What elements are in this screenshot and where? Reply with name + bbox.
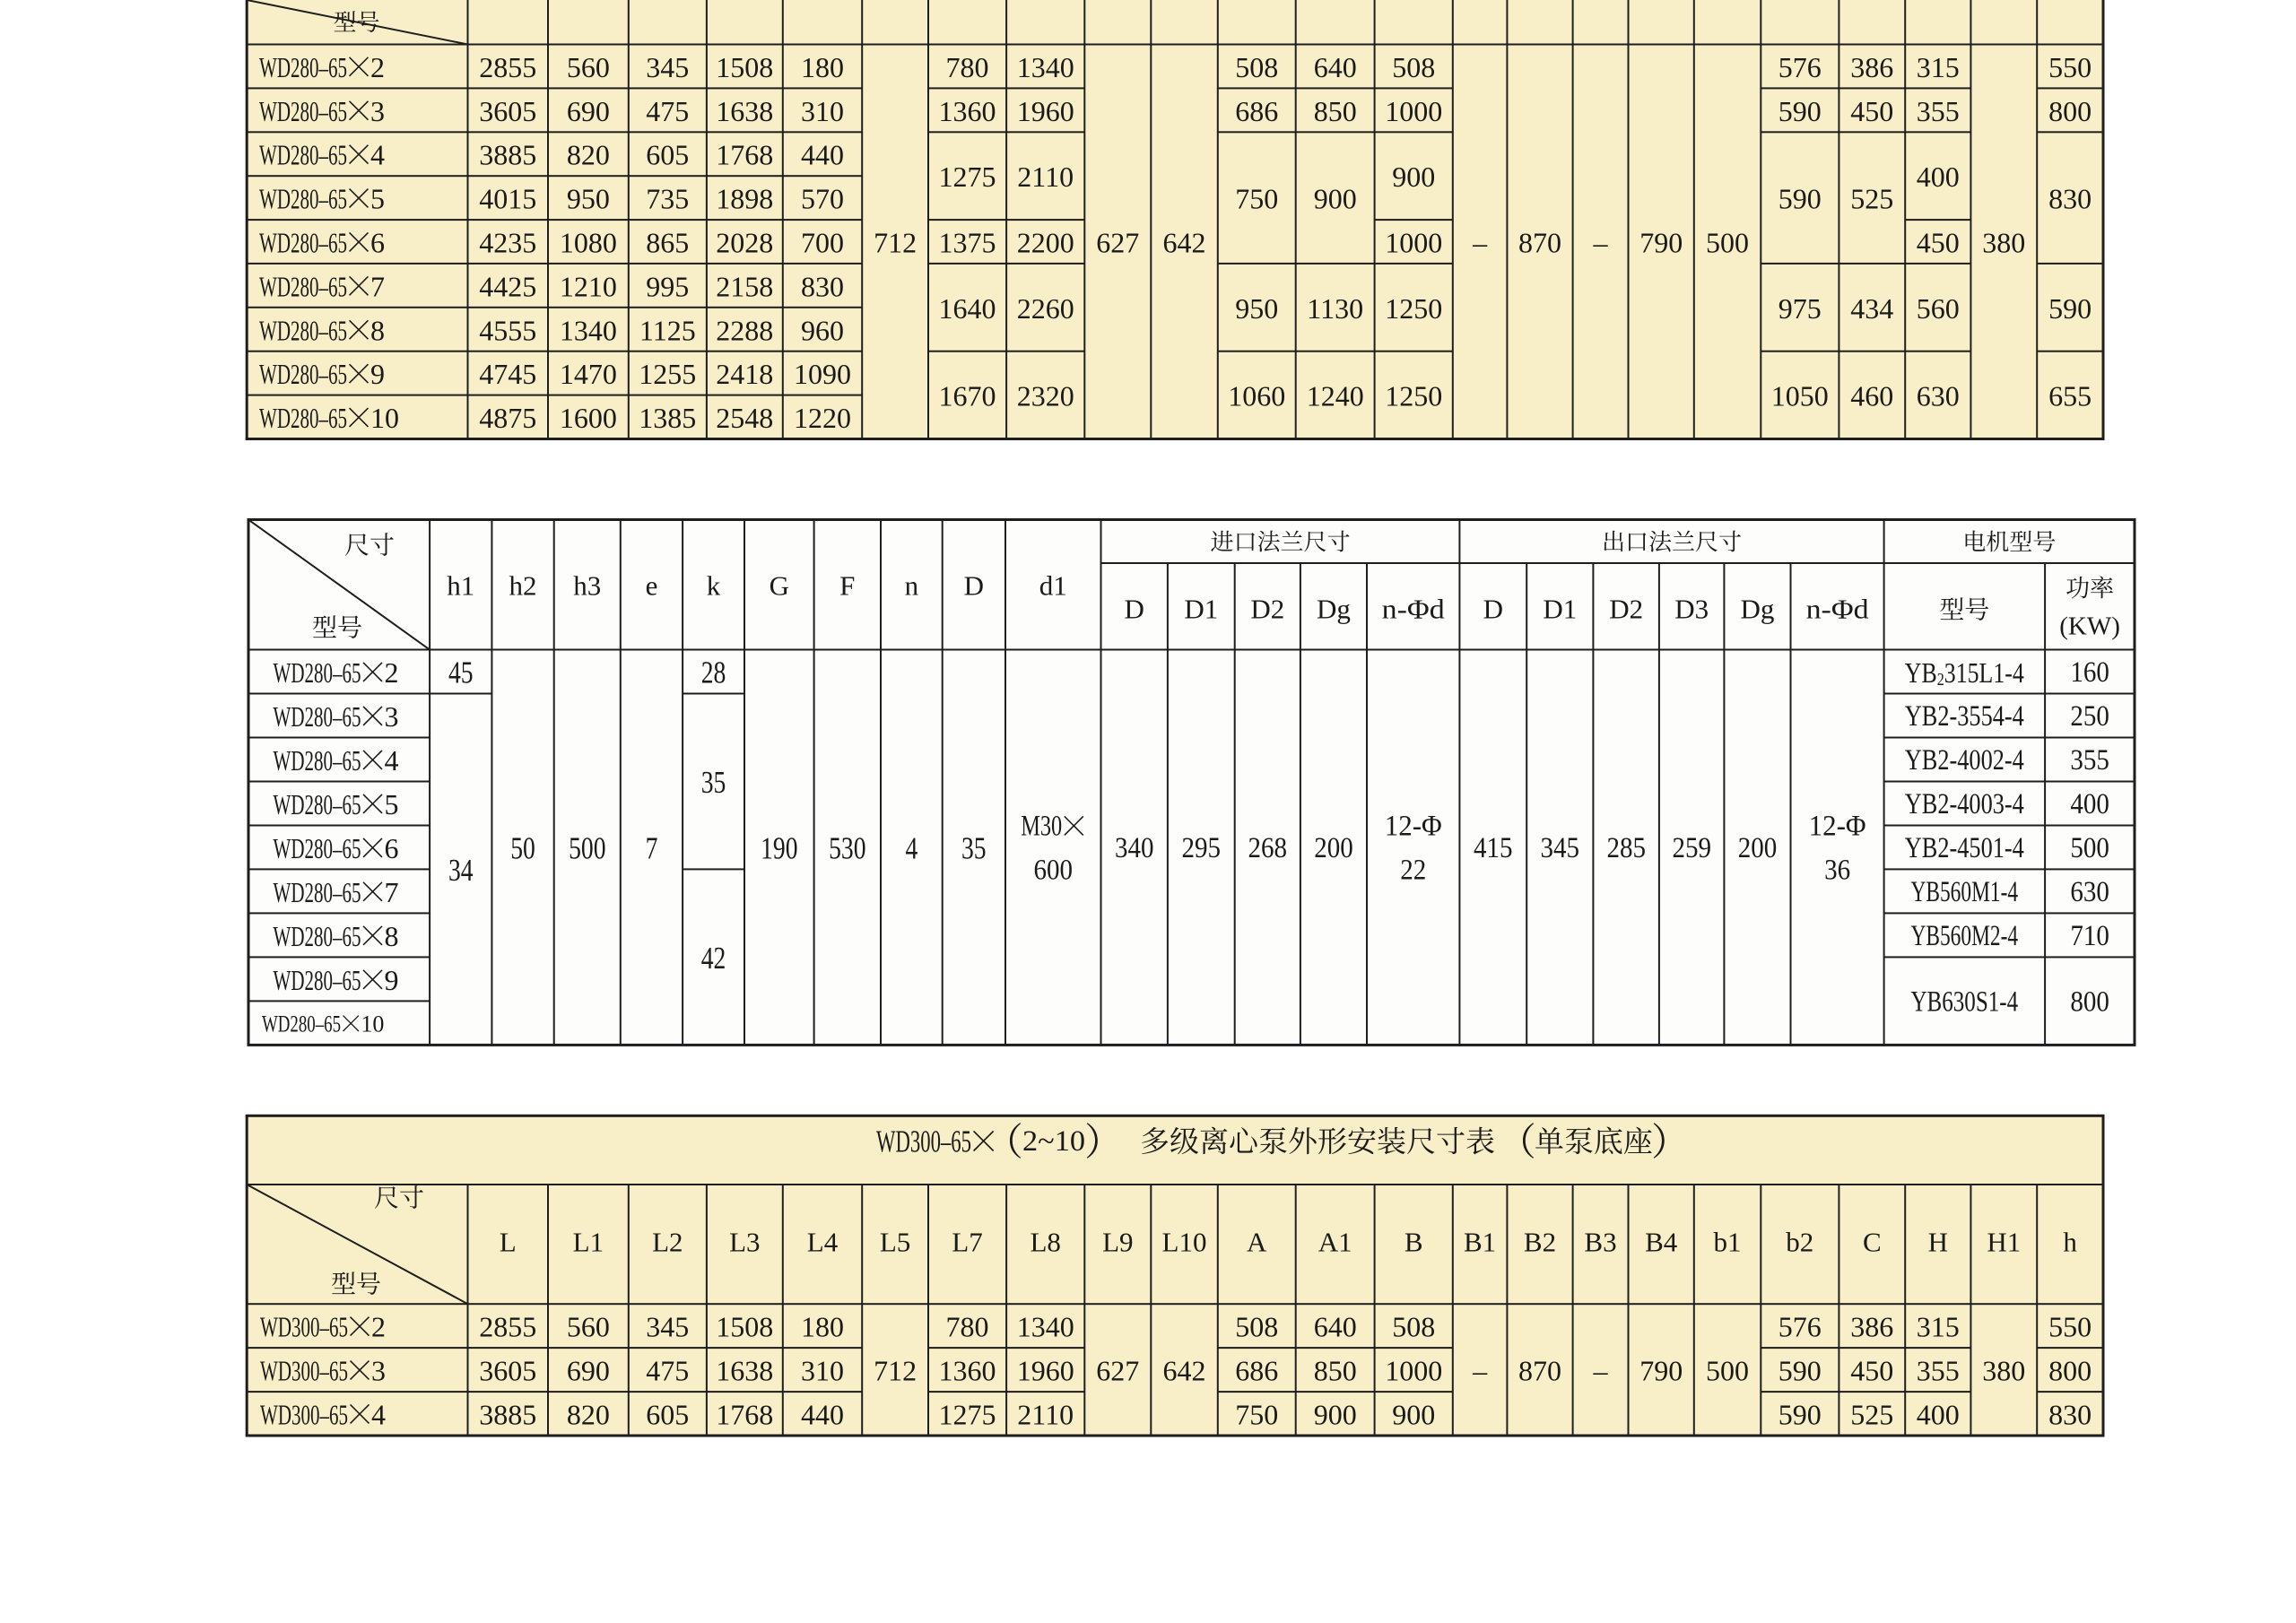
- svg-text:1255: 1255: [639, 358, 696, 390]
- svg-text:440: 440: [801, 139, 844, 171]
- svg-text:H: H: [1928, 1227, 1948, 1258]
- svg-text:400: 400: [1917, 1399, 1960, 1431]
- svg-text:780: 780: [946, 1311, 989, 1343]
- svg-text:655: 655: [2048, 380, 2092, 412]
- svg-text:415: 415: [1474, 832, 1513, 864]
- svg-text:D: D: [1483, 594, 1503, 625]
- svg-text:315: 315: [1917, 1311, 1960, 1343]
- svg-text:850: 850: [1314, 95, 1357, 127]
- svg-text:1250: 1250: [1385, 380, 1442, 412]
- svg-text:1275: 1275: [939, 1399, 996, 1431]
- svg-text:WD280–65: WD280–65: [259, 95, 347, 127]
- svg-text:750: 750: [1235, 183, 1278, 215]
- svg-text:800: 800: [2048, 95, 2092, 127]
- svg-text:605: 605: [646, 1399, 689, 1431]
- svg-text:605: 605: [646, 139, 689, 171]
- svg-text:975: 975: [1779, 292, 1822, 325]
- svg-text:1240: 1240: [1307, 380, 1364, 412]
- svg-text:460: 460: [1850, 380, 1893, 412]
- svg-text:8: 8: [385, 920, 399, 952]
- svg-text:L3: L3: [729, 1227, 760, 1258]
- svg-text:M30: M30: [1021, 811, 1062, 843]
- svg-text:L9: L9: [1102, 1227, 1133, 1258]
- svg-text:1768: 1768: [716, 1399, 773, 1431]
- svg-text:n: n: [905, 570, 919, 602]
- svg-text:YB2-4002-4: YB2-4002-4: [1905, 744, 2024, 777]
- svg-text:WD280–65: WD280–65: [259, 183, 347, 215]
- svg-text:7: 7: [646, 831, 658, 866]
- svg-text:200: 200: [1314, 832, 1353, 864]
- svg-text:WD280–65: WD280–65: [259, 227, 347, 259]
- svg-text:WD280–65: WD280–65: [262, 1011, 341, 1037]
- svg-text:285: 285: [1606, 832, 1646, 864]
- svg-text:180: 180: [801, 1311, 844, 1343]
- svg-text:440: 440: [801, 1399, 844, 1431]
- svg-text:310: 310: [801, 95, 844, 127]
- svg-text:960: 960: [801, 314, 844, 346]
- svg-text:1898: 1898: [716, 183, 773, 215]
- svg-text:3: 3: [370, 95, 385, 127]
- svg-text:n-Φd: n-Φd: [1806, 594, 1870, 625]
- svg-text:5: 5: [370, 183, 385, 215]
- svg-text:WD280–65: WD280–65: [274, 832, 361, 864]
- svg-text:1000: 1000: [1385, 227, 1442, 259]
- svg-text:2260: 2260: [1017, 292, 1074, 325]
- svg-text:2855: 2855: [479, 51, 536, 83]
- svg-text:640: 640: [1314, 1311, 1357, 1343]
- svg-text:386: 386: [1850, 51, 1893, 83]
- svg-text:–: –: [1472, 227, 1488, 259]
- svg-text:310: 310: [801, 1355, 844, 1387]
- svg-text:YB560M1-4: YB560M1-4: [1910, 876, 2018, 908]
- svg-text:4: 4: [906, 831, 918, 866]
- svg-text:1210: 1210: [560, 270, 617, 302]
- svg-text:L4: L4: [807, 1227, 839, 1258]
- svg-text:2855: 2855: [479, 1311, 536, 1343]
- svg-text:690: 690: [567, 95, 610, 127]
- svg-text:3605: 3605: [479, 1355, 536, 1387]
- svg-text:10: 10: [361, 1011, 384, 1037]
- svg-text:2110: 2110: [1017, 1399, 1074, 1431]
- svg-text:WD280–65: WD280–65: [274, 788, 361, 820]
- svg-text:C: C: [1863, 1227, 1882, 1258]
- svg-text:L5: L5: [880, 1227, 910, 1258]
- svg-text:500: 500: [1706, 1355, 1749, 1387]
- svg-text:1638: 1638: [716, 1355, 773, 1387]
- svg-text:42: 42: [701, 941, 726, 976]
- svg-text:6: 6: [370, 227, 385, 259]
- svg-text:L7: L7: [952, 1227, 982, 1258]
- svg-text:WD280–65: WD280–65: [274, 656, 361, 689]
- svg-text:WD300–65: WD300–65: [260, 1399, 348, 1431]
- svg-text:830: 830: [2048, 1399, 2092, 1431]
- svg-text:570: 570: [801, 183, 844, 215]
- svg-text:D2: D2: [1609, 594, 1643, 625]
- svg-text:h2: h2: [509, 570, 537, 602]
- svg-text:4: 4: [371, 1399, 386, 1431]
- svg-text:160: 160: [2070, 656, 2109, 689]
- svg-text:820: 820: [567, 139, 610, 171]
- svg-text:WD280–65: WD280–65: [274, 920, 361, 952]
- svg-text:590: 590: [2048, 292, 2092, 325]
- svg-text:Dg: Dg: [1317, 594, 1351, 625]
- svg-text:G: G: [770, 570, 789, 602]
- svg-text:475: 475: [646, 95, 689, 127]
- svg-text:627: 627: [1096, 1355, 1139, 1387]
- svg-text:560: 560: [567, 1311, 610, 1343]
- svg-text:2028: 2028: [716, 227, 773, 259]
- svg-text:380: 380: [1982, 1355, 2025, 1387]
- svg-text:1640: 1640: [939, 292, 996, 325]
- svg-text:YB2-4003-4: YB2-4003-4: [1905, 788, 2024, 820]
- svg-text:508: 508: [1392, 51, 1435, 83]
- svg-text:(KW): (KW): [2059, 612, 2120, 641]
- svg-text:WD280–65: WD280–65: [259, 358, 347, 390]
- svg-text:1470: 1470: [560, 358, 617, 390]
- svg-text:1060: 1060: [1228, 380, 1285, 412]
- svg-text:L1: L1: [573, 1227, 604, 1258]
- svg-text:870: 870: [1518, 1355, 1561, 1387]
- svg-text:1090: 1090: [794, 358, 851, 390]
- svg-text:630: 630: [2070, 876, 2109, 908]
- svg-text:259: 259: [1672, 832, 1711, 864]
- svg-text:1340: 1340: [560, 314, 617, 346]
- svg-text:D: D: [1125, 594, 1144, 625]
- svg-text:180: 180: [801, 51, 844, 83]
- svg-text:475: 475: [646, 1355, 689, 1387]
- svg-text:1050: 1050: [1771, 380, 1829, 412]
- svg-text:36: 36: [1824, 855, 1850, 887]
- svg-text:1508: 1508: [716, 1311, 773, 1343]
- svg-text:4555: 4555: [479, 314, 536, 346]
- svg-text:400: 400: [1917, 161, 1960, 193]
- svg-text:b2: b2: [1786, 1227, 1813, 1258]
- svg-text:790: 790: [1639, 1355, 1683, 1387]
- svg-text:1375: 1375: [939, 227, 996, 259]
- svg-text:700: 700: [801, 227, 844, 259]
- svg-text:525: 525: [1850, 1399, 1893, 1431]
- svg-text:380: 380: [1982, 227, 2025, 259]
- svg-text:950: 950: [567, 183, 610, 215]
- svg-text:1360: 1360: [939, 95, 996, 127]
- svg-text:A1: A1: [1318, 1227, 1352, 1258]
- svg-text:4: 4: [370, 139, 385, 171]
- svg-text:550: 550: [2048, 1311, 2092, 1343]
- svg-text:B4: B4: [1645, 1227, 1678, 1258]
- svg-text:WD300–65: WD300–65: [260, 1311, 348, 1343]
- svg-text:450: 450: [1917, 227, 1960, 259]
- svg-text:900: 900: [1314, 1399, 1357, 1431]
- svg-text:WD280–65: WD280–65: [259, 402, 347, 434]
- svg-text:28: 28: [701, 655, 726, 690]
- svg-text:2200: 2200: [1017, 227, 1074, 259]
- svg-text:A: A: [1247, 1227, 1267, 1258]
- svg-text:1385: 1385: [639, 402, 696, 434]
- svg-text:WD300–65: WD300–65: [260, 1355, 348, 1387]
- svg-text:–: –: [1593, 1355, 1609, 1387]
- svg-text:250: 250: [2070, 700, 2109, 733]
- svg-text:7: 7: [370, 270, 385, 302]
- svg-text:1130: 1130: [1307, 292, 1363, 325]
- svg-text:590: 590: [1779, 1399, 1822, 1431]
- svg-text:22: 22: [1400, 855, 1426, 887]
- svg-text:YB560M2-4: YB560M2-4: [1910, 920, 2018, 952]
- svg-text:D1: D1: [1184, 594, 1218, 625]
- svg-text:1220: 1220: [794, 402, 851, 434]
- svg-text:2288: 2288: [716, 314, 773, 346]
- svg-text:WD280–65: WD280–65: [274, 744, 361, 777]
- svg-text:F: F: [839, 570, 855, 602]
- svg-text:355: 355: [1917, 1355, 1960, 1387]
- svg-text:2: 2: [370, 51, 385, 83]
- svg-text:355: 355: [2070, 744, 2109, 777]
- svg-text:7: 7: [385, 876, 399, 908]
- svg-text:YB2-3554-4: YB2-3554-4: [1905, 700, 2024, 733]
- svg-text:400: 400: [2070, 788, 2109, 820]
- svg-text:34: 34: [448, 853, 474, 888]
- svg-text:1960: 1960: [1017, 95, 1074, 127]
- svg-text:340: 340: [1115, 832, 1154, 864]
- svg-text:500: 500: [1706, 227, 1749, 259]
- svg-text:9: 9: [370, 358, 385, 390]
- svg-text:1600: 1600: [560, 402, 617, 434]
- svg-text:B1: B1: [1464, 1227, 1496, 1258]
- svg-text:4875: 4875: [479, 402, 536, 434]
- svg-text:Dg: Dg: [1741, 594, 1775, 625]
- svg-text:b1: b1: [1714, 1227, 1742, 1258]
- svg-text:YB2315L1-4: YB2315L1-4: [1905, 656, 2024, 690]
- svg-text:B3: B3: [1584, 1227, 1616, 1258]
- svg-text:550: 550: [2048, 51, 2092, 83]
- svg-text:200: 200: [1738, 832, 1778, 864]
- svg-text:h: h: [2063, 1227, 2077, 1258]
- svg-text:3885: 3885: [479, 1399, 536, 1431]
- svg-text:1638: 1638: [716, 95, 773, 127]
- svg-text:1508: 1508: [716, 51, 773, 83]
- svg-text:865: 865: [646, 227, 689, 259]
- svg-text:d1: d1: [1039, 570, 1067, 602]
- svg-text:345: 345: [646, 1311, 689, 1343]
- svg-text:n-Φd: n-Φd: [1382, 594, 1446, 625]
- svg-text:830: 830: [2048, 183, 2092, 215]
- svg-text:508: 508: [1392, 1311, 1435, 1343]
- svg-text:h3: h3: [573, 570, 601, 602]
- svg-text:D3: D3: [1674, 594, 1709, 625]
- svg-text:50: 50: [510, 831, 535, 866]
- svg-text:WD300–65: WD300–65: [876, 1124, 971, 1159]
- svg-text:WD280–65: WD280–65: [259, 314, 347, 346]
- svg-text:WD280–65: WD280–65: [259, 51, 347, 83]
- svg-text:L2: L2: [652, 1227, 683, 1258]
- svg-text:1960: 1960: [1017, 1355, 1074, 1387]
- svg-text:2: 2: [385, 656, 399, 689]
- svg-text:686: 686: [1235, 1355, 1278, 1387]
- svg-text:780: 780: [946, 51, 989, 83]
- svg-text:4015: 4015: [479, 183, 536, 215]
- svg-text:B: B: [1405, 1227, 1423, 1258]
- svg-text:1340: 1340: [1017, 51, 1074, 83]
- svg-text:1000: 1000: [1385, 1355, 1442, 1387]
- svg-text:295: 295: [1182, 832, 1222, 864]
- svg-text:600: 600: [1033, 855, 1073, 887]
- svg-text:8: 8: [370, 314, 385, 346]
- svg-text:508: 508: [1235, 1311, 1278, 1343]
- svg-text:900: 900: [1392, 1399, 1435, 1431]
- svg-text:820: 820: [567, 1399, 610, 1431]
- svg-text:3885: 3885: [479, 139, 536, 171]
- svg-text:590: 590: [1779, 183, 1822, 215]
- svg-text:WD280–65: WD280–65: [259, 139, 347, 171]
- svg-text:YB2-4501-4: YB2-4501-4: [1905, 832, 2024, 864]
- svg-text:WD280–65: WD280–65: [274, 876, 361, 908]
- svg-text:190: 190: [761, 831, 797, 866]
- svg-text:2418: 2418: [716, 358, 773, 390]
- svg-text:9: 9: [385, 964, 399, 996]
- svg-text:576: 576: [1779, 51, 1822, 83]
- svg-text:D2: D2: [1250, 594, 1284, 625]
- svg-text:1670: 1670: [939, 380, 996, 412]
- svg-text:2158: 2158: [716, 270, 773, 302]
- svg-text:500: 500: [2070, 832, 2109, 864]
- svg-text:590: 590: [1779, 95, 1822, 127]
- svg-text:525: 525: [1850, 183, 1893, 215]
- svg-text:4425: 4425: [479, 270, 536, 302]
- svg-text:712: 712: [874, 1355, 917, 1387]
- svg-text:B2: B2: [1524, 1227, 1556, 1258]
- svg-text:710: 710: [2070, 920, 2109, 952]
- svg-text:268: 268: [1248, 832, 1288, 864]
- svg-text:950: 950: [1235, 292, 1278, 325]
- svg-text:WD280–65: WD280–65: [274, 700, 361, 733]
- svg-text:642: 642: [1163, 227, 1206, 259]
- svg-text:450: 450: [1850, 95, 1893, 127]
- svg-text:450: 450: [1850, 1355, 1893, 1387]
- svg-text:1080: 1080: [560, 227, 617, 259]
- svg-text:560: 560: [1917, 292, 1960, 325]
- svg-text:870: 870: [1518, 227, 1561, 259]
- svg-text:790: 790: [1639, 227, 1683, 259]
- svg-text:D: D: [964, 570, 984, 602]
- svg-text:500: 500: [569, 831, 605, 866]
- svg-text:630: 630: [1917, 380, 1960, 412]
- svg-text:35: 35: [701, 765, 726, 800]
- svg-text:508: 508: [1235, 51, 1278, 83]
- svg-text:642: 642: [1163, 1355, 1206, 1387]
- svg-text:627: 627: [1096, 227, 1139, 259]
- svg-text:345: 345: [646, 51, 689, 83]
- svg-text:750: 750: [1235, 1399, 1278, 1431]
- svg-text:3: 3: [371, 1355, 386, 1387]
- svg-text:315: 315: [1917, 51, 1960, 83]
- svg-text:434: 434: [1850, 292, 1893, 325]
- svg-text:L8: L8: [1030, 1227, 1060, 1258]
- svg-text:1250: 1250: [1385, 292, 1442, 325]
- svg-text:3: 3: [385, 700, 399, 733]
- svg-text:1125: 1125: [639, 314, 696, 346]
- svg-text:712: 712: [874, 227, 917, 259]
- svg-text:1768: 1768: [716, 139, 773, 171]
- svg-text:2~10: 2~10: [1022, 1125, 1085, 1158]
- svg-text:576: 576: [1779, 1311, 1822, 1343]
- svg-text:850: 850: [1314, 1355, 1357, 1387]
- svg-text:1360: 1360: [939, 1355, 996, 1387]
- svg-text:2548: 2548: [716, 402, 773, 434]
- svg-text:L10: L10: [1162, 1227, 1207, 1258]
- svg-text:10: 10: [370, 402, 399, 434]
- svg-text:530: 530: [829, 831, 865, 866]
- svg-text:690: 690: [567, 1355, 610, 1387]
- svg-text:2110: 2110: [1017, 161, 1074, 193]
- svg-text:h1: h1: [447, 570, 474, 602]
- svg-text:2: 2: [371, 1311, 386, 1343]
- svg-text:735: 735: [646, 183, 689, 215]
- svg-text:12-Φ: 12-Φ: [1385, 811, 1442, 843]
- svg-text:k: k: [707, 570, 721, 602]
- svg-text:800: 800: [2048, 1355, 2092, 1387]
- svg-text:WD280–65: WD280–65: [274, 964, 361, 996]
- svg-text:–: –: [1472, 1355, 1488, 1387]
- svg-text:830: 830: [801, 270, 844, 302]
- svg-text:1000: 1000: [1385, 95, 1442, 127]
- svg-text:5: 5: [385, 788, 399, 820]
- svg-text:2320: 2320: [1017, 380, 1074, 412]
- svg-text:686: 686: [1235, 95, 1278, 127]
- svg-text:45: 45: [448, 655, 474, 690]
- svg-text:3605: 3605: [479, 95, 536, 127]
- svg-text:YB630S1-4: YB630S1-4: [1910, 985, 2018, 1018]
- svg-text:4745: 4745: [479, 358, 536, 390]
- svg-text:35: 35: [961, 831, 987, 866]
- svg-text:6: 6: [385, 832, 399, 864]
- svg-text:WD280–65: WD280–65: [259, 270, 347, 302]
- svg-text:e: e: [646, 570, 658, 602]
- svg-text:995: 995: [646, 270, 689, 302]
- svg-text:345: 345: [1541, 832, 1580, 864]
- svg-text:386: 386: [1850, 1311, 1893, 1343]
- svg-text:D1: D1: [1543, 594, 1577, 625]
- svg-text:900: 900: [1392, 161, 1435, 193]
- svg-text:1340: 1340: [1017, 1311, 1074, 1343]
- svg-text:640: 640: [1314, 51, 1357, 83]
- svg-text:1275: 1275: [939, 161, 996, 193]
- svg-text:4: 4: [385, 744, 399, 777]
- svg-text:–: –: [1593, 227, 1609, 259]
- svg-text:H1: H1: [1987, 1227, 2021, 1258]
- svg-text:900: 900: [1314, 183, 1357, 215]
- svg-text:560: 560: [567, 51, 610, 83]
- svg-text:L: L: [500, 1227, 517, 1258]
- svg-text:590: 590: [1779, 1355, 1822, 1387]
- svg-text:4235: 4235: [479, 227, 536, 259]
- svg-text:12-Φ: 12-Φ: [1809, 811, 1866, 843]
- svg-text:355: 355: [1917, 95, 1960, 127]
- svg-text:800: 800: [2070, 985, 2109, 1018]
